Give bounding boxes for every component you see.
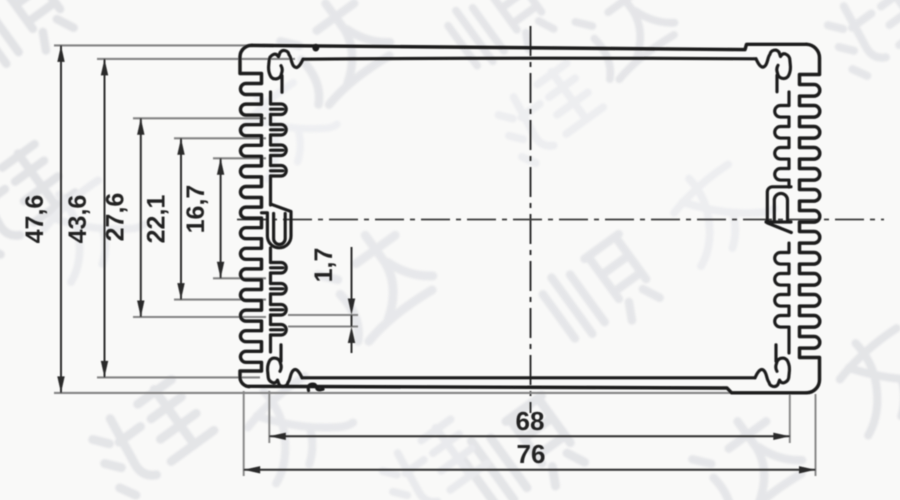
svg-text:68: 68	[516, 406, 545, 436]
svg-text:1,7: 1,7	[310, 248, 338, 283]
svg-text:22,1: 22,1	[143, 195, 171, 244]
svg-text:16,7: 16,7	[182, 185, 210, 234]
svg-text:47,6: 47,6	[21, 195, 49, 244]
svg-text:76: 76	[517, 439, 546, 469]
svg-text:43,6: 43,6	[64, 195, 92, 244]
svg-text:27,6: 27,6	[102, 193, 130, 242]
